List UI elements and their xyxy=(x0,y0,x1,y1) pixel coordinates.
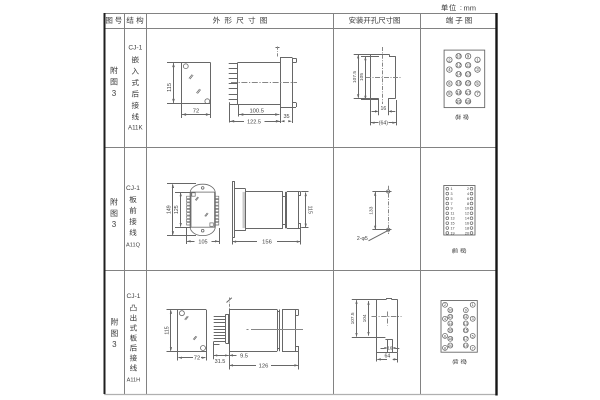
svg-text:4: 4 xyxy=(444,317,446,321)
svg-text:10: 10 xyxy=(465,207,469,211)
svg-text:): ) xyxy=(467,115,469,121)
svg-text:126: 126 xyxy=(259,363,269,369)
svg-text:125: 125 xyxy=(174,205,180,214)
svg-text:2-φ5: 2-φ5 xyxy=(357,236,368,242)
svg-text:14: 14 xyxy=(448,322,452,326)
svg-text:122.5: 122.5 xyxy=(247,119,261,125)
svg-text:20: 20 xyxy=(448,344,452,348)
svg-text:14: 14 xyxy=(456,72,461,77)
svg-text:15: 15 xyxy=(464,329,468,333)
svg-text:5: 5 xyxy=(451,197,453,201)
svg-text:10: 10 xyxy=(456,54,461,59)
svg-text:8: 8 xyxy=(467,202,469,206)
svg-text:7: 7 xyxy=(451,202,453,206)
svg-text:18: 18 xyxy=(465,226,469,230)
svg-text:1: 1 xyxy=(472,303,474,307)
svg-text:(64): (64) xyxy=(379,121,388,127)
svg-text:20: 20 xyxy=(456,99,461,104)
svg-text:115: 115 xyxy=(306,206,312,214)
svg-text:19: 19 xyxy=(464,344,468,348)
svg-text:11: 11 xyxy=(451,212,455,216)
svg-text:mm: mm xyxy=(464,4,477,13)
svg-text:19: 19 xyxy=(466,99,471,104)
svg-text:7: 7 xyxy=(472,346,474,350)
svg-text:): ) xyxy=(465,249,467,255)
svg-text:2: 2 xyxy=(467,187,469,191)
svg-text:17: 17 xyxy=(466,90,471,95)
svg-text:100.5: 100.5 xyxy=(249,108,264,114)
svg-text:13: 13 xyxy=(466,72,471,77)
svg-text:149: 149 xyxy=(166,205,172,214)
svg-text:115: 115 xyxy=(164,326,170,334)
svg-text:133: 133 xyxy=(369,206,375,214)
svg-text:11: 11 xyxy=(464,315,468,319)
svg-text:3: 3 xyxy=(451,192,453,196)
svg-text:10: 10 xyxy=(448,308,452,312)
svg-text:8: 8 xyxy=(444,346,446,350)
svg-text:CJ-1: CJ-1 xyxy=(126,185,140,192)
svg-text:105: 105 xyxy=(198,239,207,245)
svg-text:3: 3 xyxy=(112,89,117,98)
svg-text::: : xyxy=(460,3,462,12)
svg-text:3: 3 xyxy=(112,220,117,229)
svg-text:13: 13 xyxy=(451,217,455,221)
svg-text:5: 5 xyxy=(472,334,474,338)
svg-text:1: 1 xyxy=(451,187,453,191)
svg-text:18: 18 xyxy=(456,90,461,95)
svg-text:107.5: 107.5 xyxy=(352,71,358,83)
svg-text:3: 3 xyxy=(472,317,474,321)
svg-text:35: 35 xyxy=(283,114,289,120)
svg-text:72: 72 xyxy=(193,108,199,114)
svg-text:64: 64 xyxy=(385,354,391,360)
svg-text:13: 13 xyxy=(464,322,468,326)
svg-text:6: 6 xyxy=(467,197,469,201)
svg-text:12: 12 xyxy=(456,63,461,68)
svg-text:4: 4 xyxy=(467,192,469,196)
svg-text:115: 115 xyxy=(167,83,173,92)
svg-text:9: 9 xyxy=(465,308,467,312)
svg-text:31.5: 31.5 xyxy=(215,359,226,365)
svg-text:16: 16 xyxy=(381,106,387,112)
svg-text:16: 16 xyxy=(465,221,469,225)
svg-text:12: 12 xyxy=(448,315,452,319)
svg-text:156: 156 xyxy=(262,240,272,246)
svg-text:2: 2 xyxy=(444,303,446,307)
svg-text:14: 14 xyxy=(465,217,469,221)
svg-text:17: 17 xyxy=(451,226,455,230)
svg-text:15: 15 xyxy=(466,81,471,86)
svg-text:9: 9 xyxy=(451,207,453,211)
svg-text:6: 6 xyxy=(444,334,446,338)
svg-text:A11Q: A11Q xyxy=(126,243,141,249)
svg-text:CJ-1: CJ-1 xyxy=(126,293,140,300)
svg-text:16: 16 xyxy=(456,81,461,86)
svg-text:15: 15 xyxy=(451,221,455,225)
svg-text:72: 72 xyxy=(194,356,200,362)
svg-text:18: 18 xyxy=(448,337,452,341)
svg-text:16: 16 xyxy=(448,329,452,333)
svg-text:A11H: A11H xyxy=(127,378,141,384)
svg-text:107.5: 107.5 xyxy=(350,312,356,324)
svg-text:): ) xyxy=(465,360,467,366)
svg-text:105: 105 xyxy=(359,73,365,81)
svg-text:20: 20 xyxy=(465,231,469,235)
svg-text:A11K: A11K xyxy=(128,125,144,132)
svg-text:12: 12 xyxy=(465,212,469,216)
svg-text:17: 17 xyxy=(464,337,468,341)
svg-text:CJ-1: CJ-1 xyxy=(128,45,142,52)
svg-text:19: 19 xyxy=(451,231,455,235)
svg-text:104: 104 xyxy=(362,314,368,322)
svg-text:9.5: 9.5 xyxy=(240,353,248,359)
svg-text:11: 11 xyxy=(466,63,471,68)
svg-text:3: 3 xyxy=(112,340,117,349)
